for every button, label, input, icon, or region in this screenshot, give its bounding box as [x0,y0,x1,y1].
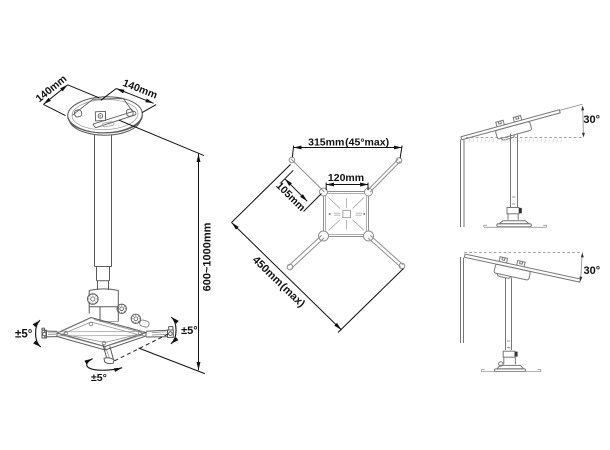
svg-text:120mm: 120mm [328,172,364,184]
svg-text:450mm (max): 450mm (max) [250,254,308,310]
svg-text:±5°: ±5° [91,372,107,384]
svg-text:140mm: 140mm [34,73,70,105]
svg-text:600~1000mm: 600~1000mm [201,222,213,291]
svg-text:30°: 30° [583,265,600,277]
svg-text:315mm (45°max): 315mm (45°max) [308,137,389,149]
svg-text:±5°: ±5° [15,329,33,341]
svg-text:30°: 30° [583,114,600,126]
svg-text:±5°: ±5° [181,325,198,337]
